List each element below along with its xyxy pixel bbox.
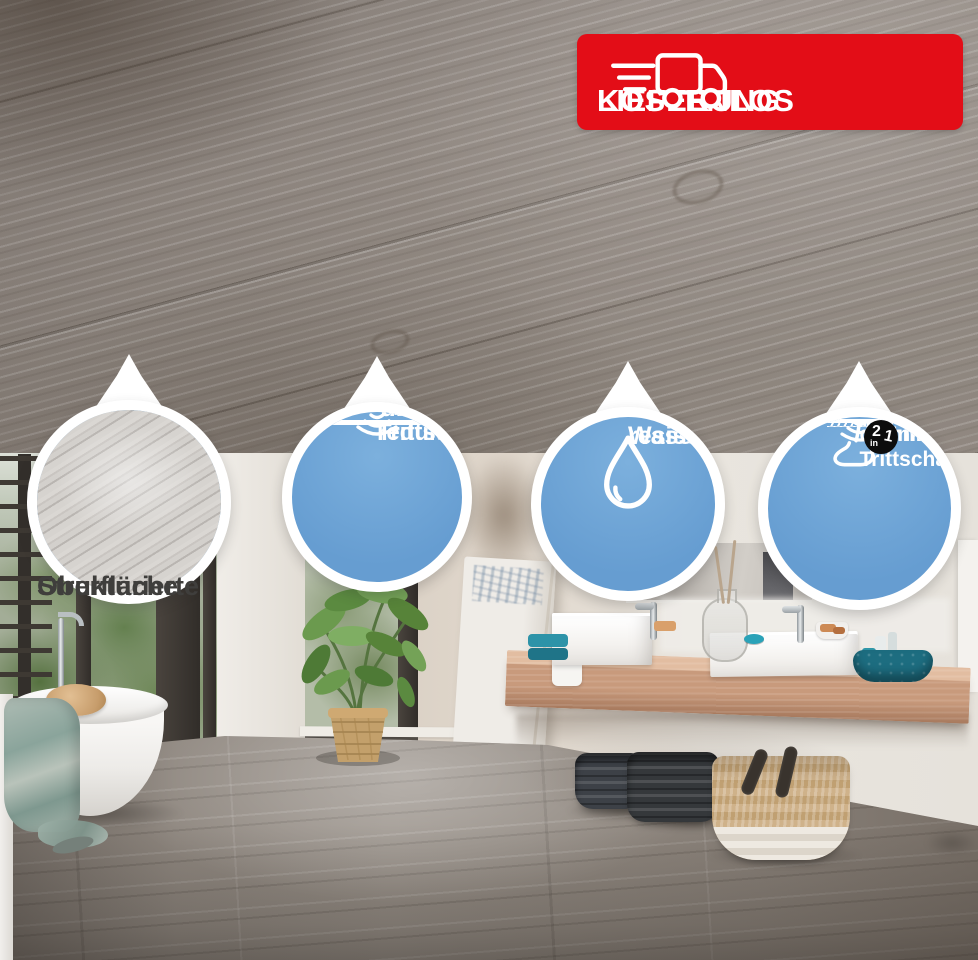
two-in-one-bottom: 1	[882, 428, 894, 446]
woven-basket-dark	[627, 752, 719, 822]
wood-texture-swatch	[37, 410, 221, 594]
badge-structured-surface: Strukturierte Oberfläche	[27, 400, 231, 604]
two-in-one-middle: in	[870, 439, 878, 448]
badge-impact-sound-reduction: -18 dB Trittschall- reduktion	[282, 402, 472, 592]
free-delivery-banner: LIEFERUNG KOSTENLOS	[577, 34, 963, 130]
potted-plant	[286, 560, 438, 770]
draped-towel	[4, 698, 80, 832]
badge-content: -18 dB Trittschall- reduktion	[292, 412, 462, 582]
folded-towel	[528, 634, 568, 647]
badge-underlay-included: Inkl. Trittschall- dämmung	[758, 407, 961, 610]
floor-shadow	[926, 830, 978, 856]
crochet-basket	[853, 650, 933, 682]
bathtub-faucet	[58, 618, 64, 694]
badge-label-line2: reduktion	[377, 419, 462, 447]
badge-content: Inkl. Trittschall- dämmung	[768, 417, 951, 600]
delivery-truck-icon	[597, 48, 739, 116]
product-image: Strukturierte Oberfläche -18 dB Trittsch…	[0, 0, 978, 960]
faucet-right	[797, 605, 804, 643]
panel-markings	[472, 565, 544, 605]
badge-water-resistant: Wasser- resistent	[531, 407, 725, 601]
badge-content	[37, 410, 221, 594]
soap-bar	[833, 627, 845, 634]
glass-vase	[702, 598, 748, 662]
soap-teal	[744, 634, 764, 644]
folded-towel	[528, 648, 568, 660]
badge-label-line2: resistent	[628, 422, 715, 452]
badge-label-line2: Oberfläche	[37, 570, 178, 604]
straw-basket-bottom	[712, 827, 850, 860]
badge-content: Wasser- resistent	[541, 417, 715, 591]
two-in-one-badge: 2 in 1	[864, 420, 898, 454]
soap-bar	[654, 621, 676, 631]
